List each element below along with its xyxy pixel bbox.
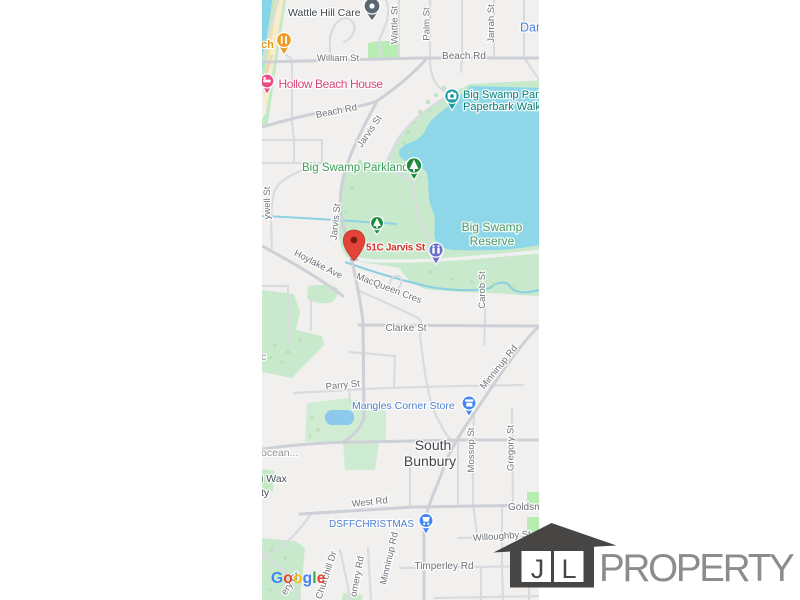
svg-text:South: South (415, 437, 452, 453)
svg-text:Google: Google (271, 570, 326, 587)
svg-text:Mangles Corner Store: Mangles Corner Store (352, 400, 455, 412)
svg-text:Timperley Rd: Timperley Rd (414, 561, 473, 572)
svg-text:i Wax: i Wax (261, 473, 288, 485)
svg-text:William St: William St (317, 53, 360, 64)
svg-text:ywell St: ywell St (262, 186, 273, 219)
svg-text:PROPERTY: PROPERTY (599, 547, 794, 590)
svg-text:Hollow Beach House: Hollow Beach House (279, 77, 384, 91)
svg-text:DSFFCHRISTMAS: DSFFCHRISTMAS (329, 519, 414, 530)
svg-text:Big Swamp Park: Big Swamp Park (463, 89, 545, 101)
svg-text:Mossop St: Mossop St (466, 427, 477, 472)
svg-text:Big Swamp: Big Swamp (462, 220, 523, 234)
svg-text:Beach Rd: Beach Rd (442, 51, 486, 62)
svg-text:J: J (531, 554, 545, 584)
svg-text:Gregory St: Gregory St (506, 425, 517, 471)
svg-text:Bunbury: Bunbury (404, 453, 456, 469)
svg-text:Wattle Hill Care: Wattle Hill Care (288, 7, 361, 19)
svg-text:ocean...: ocean... (261, 447, 298, 459)
svg-text:Palm St: Palm St (422, 7, 433, 41)
svg-text:Wattle St: Wattle St (390, 6, 401, 45)
svg-text:Jarrah St: Jarrah St (486, 4, 497, 43)
svg-text:Big Swamp Parkland: Big Swamp Parkland (302, 162, 409, 174)
svg-text:Goldsm: Goldsm (508, 502, 542, 513)
svg-text:Clarke St: Clarke St (385, 323, 426, 334)
svg-text:ty: ty (261, 487, 270, 499)
svg-text:Reserve: Reserve (470, 234, 515, 248)
svg-text:Paperbark Walk: Paperbark Walk (463, 101, 541, 113)
svg-text:51C Jarvis St: 51C Jarvis St (366, 243, 426, 254)
svg-text:L: L (561, 554, 576, 584)
svg-text:ch: ch (261, 39, 274, 51)
svg-text:Carob St: Carob St (477, 271, 488, 309)
